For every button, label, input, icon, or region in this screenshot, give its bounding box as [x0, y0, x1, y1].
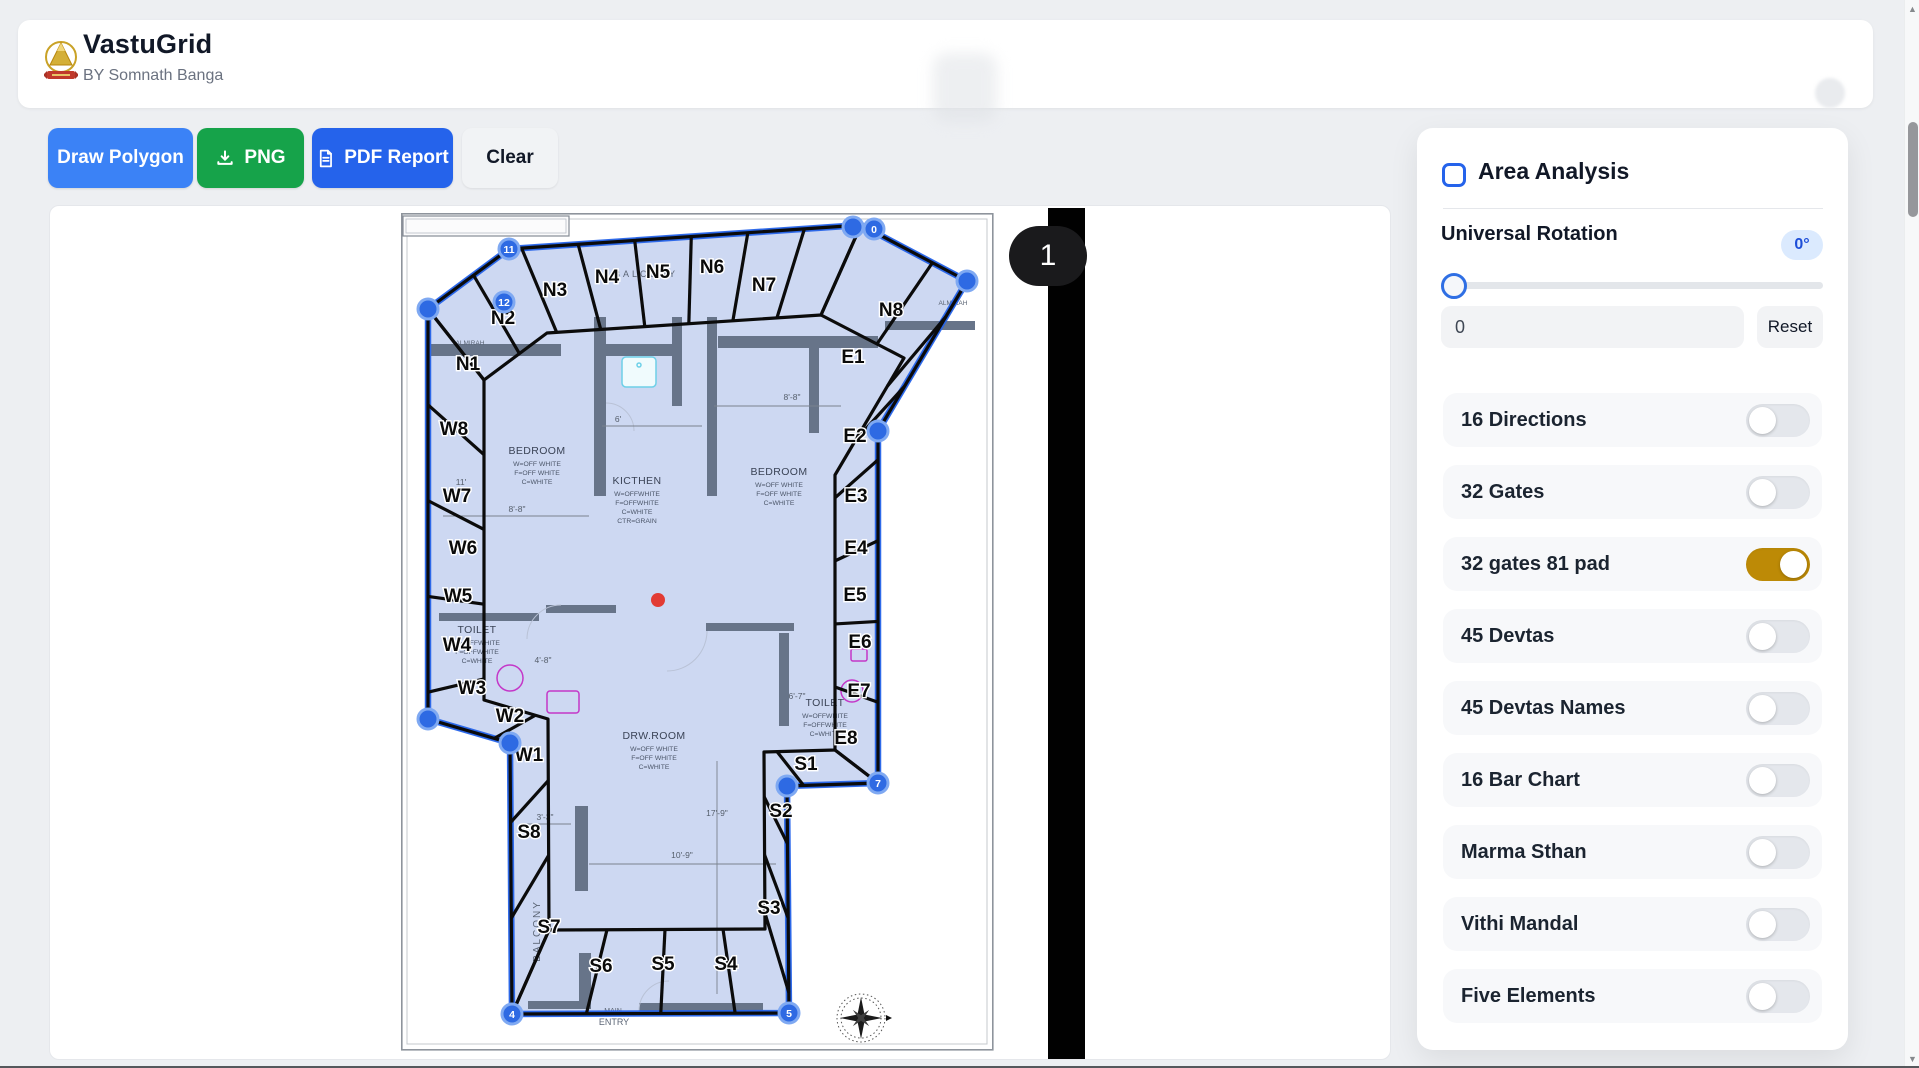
rotation-input[interactable]: [1441, 306, 1744, 348]
sector-label: S3: [757, 898, 780, 919]
vertex-handle[interactable]: [418, 299, 438, 319]
area-analysis-checkbox[interactable]: [1442, 163, 1466, 187]
vertex-handle[interactable]: [843, 217, 863, 237]
wall: [594, 317, 606, 496]
document-icon: [316, 149, 335, 168]
sector-label: S1: [794, 754, 818, 775]
sector-label: S4: [714, 954, 738, 975]
universal-rotation-label: Universal Rotation: [1441, 223, 1618, 246]
header-faded-circle: [1815, 78, 1845, 108]
vertex-handle[interactable]: [777, 776, 797, 796]
clear-button[interactable]: Clear: [462, 128, 558, 188]
sector-label: E2: [843, 426, 866, 447]
sector-label: E4: [844, 538, 868, 559]
toggle-row-five-elements: Five Elements: [1443, 969, 1822, 1023]
toggle-row-45-devtas: 45 Devtas: [1443, 609, 1822, 663]
wall: [431, 344, 561, 356]
page-number-badge[interactable]: 1: [1009, 226, 1087, 286]
header-watermark: [933, 53, 997, 123]
toggle-label-five-elements: Five Elements: [1461, 985, 1596, 1008]
toggle-label-16-bar-chart: 16 Bar Chart: [1461, 769, 1580, 792]
toggle-switch-16-bar-chart[interactable]: [1746, 764, 1810, 797]
sector-label: E5: [843, 585, 867, 606]
vertex-number: 12: [498, 297, 510, 309]
toggle-label-16-directions: 16 Directions: [1461, 409, 1587, 432]
page-divider-bar: [1048, 208, 1085, 1059]
scroll-down-arrow-icon[interactable]: ▼: [1905, 1051, 1919, 1067]
dimension-label: 4'-8": [535, 655, 552, 665]
sector-label: W3: [458, 678, 487, 699]
almirah-left-label: ALMIRAH: [456, 340, 485, 347]
sector-label: E8: [834, 728, 857, 749]
sector-label: E7: [847, 681, 870, 702]
rotation-value-badge: 0°: [1781, 230, 1823, 260]
dimension-label: 17'-9": [706, 808, 728, 818]
wall: [706, 623, 794, 631]
app-header: VastuGrid BY Somnath Banga: [18, 20, 1873, 108]
toggle-label-45-devtas-names: 45 Devtas Names: [1461, 697, 1626, 720]
vertex-number: 11: [503, 244, 514, 256]
vertex-number: 7: [875, 778, 881, 790]
toggle-switch-45-devtas-names[interactable]: [1746, 692, 1810, 725]
wall: [885, 321, 975, 330]
vertex-handle[interactable]: [868, 421, 888, 441]
page-title: VastuGrid: [83, 29, 212, 60]
wall: [575, 806, 588, 891]
wall: [779, 633, 789, 726]
sector-label: N8: [879, 300, 903, 321]
toggle-switch-five-elements[interactable]: [1746, 980, 1810, 1013]
sector-label: N1: [456, 354, 481, 375]
sector-label: E3: [844, 486, 867, 507]
vertex-handle[interactable]: [957, 271, 977, 291]
toggle-label-marma-sthan: Marma Sthan: [1461, 841, 1587, 864]
sector-label: E6: [848, 632, 871, 653]
toggle-row-16-directions: 16 Directions: [1443, 393, 1822, 447]
reset-button[interactable]: Reset: [1757, 306, 1823, 348]
page-scrollbar[interactable]: ▲ ▼: [1904, 0, 1919, 1068]
rotation-slider-thumb[interactable]: [1441, 273, 1467, 299]
sector-label: E1: [841, 347, 865, 368]
toggle-switch-32-gates[interactable]: [1746, 476, 1810, 509]
toggle-label-45-devtas: 45 Devtas: [1461, 625, 1554, 648]
wall: [546, 605, 616, 613]
sector-label: S5: [651, 954, 675, 975]
divider: [1443, 208, 1823, 209]
sector-label: S2: [769, 801, 792, 822]
sector-label: S7: [537, 917, 560, 938]
sector-label: W8: [440, 419, 469, 440]
toggle-row-32-gates: 32 Gates: [1443, 465, 1822, 519]
wall: [639, 1003, 763, 1011]
pdf-button-label: PDF Report: [344, 147, 449, 169]
wall: [672, 317, 682, 406]
draw-polygon-button[interactable]: Draw Polygon: [48, 128, 193, 188]
png-button-label: PNG: [244, 147, 285, 169]
sector-label: N4: [595, 267, 620, 288]
sector-label: W2: [496, 706, 525, 727]
toggle-row-32-gates-81-pad: 32 gates 81 pad: [1443, 537, 1822, 591]
wall: [809, 338, 819, 433]
dimension-label: 6'-7": [789, 691, 806, 701]
toggle-row-marma-sthan: Marma Sthan: [1443, 825, 1822, 879]
overlay-toggle-list: 16 Directions32 Gates32 gates 81 pad45 D…: [1443, 393, 1822, 1041]
dimension-label: 10'-9": [671, 850, 693, 860]
vertex-number: 0: [871, 224, 877, 236]
wall: [439, 613, 539, 621]
toggle-row-16-bar-chart: 16 Bar Chart: [1443, 753, 1822, 807]
dimension-label: 6': [615, 414, 622, 424]
scrollbar-thumb[interactable]: [1908, 122, 1918, 217]
toggle-switch-45-devtas[interactable]: [1746, 620, 1810, 653]
vertex-handle[interactable]: [500, 733, 520, 753]
png-button[interactable]: PNG: [197, 128, 304, 188]
toggle-row-vithi-mandal: Vithi Mandal: [1443, 897, 1822, 951]
scroll-up-arrow-icon[interactable]: ▲: [1905, 1, 1919, 17]
panel-title: Area Analysis: [1478, 158, 1629, 185]
sector-label: W5: [444, 586, 473, 607]
sector-label: N7: [752, 275, 776, 296]
dimension-label: 8'-8": [784, 392, 801, 402]
download-icon: [215, 148, 235, 168]
area-analysis-panel: Area Analysis Universal Rotation 0° Rese…: [1417, 128, 1848, 1050]
wall: [707, 317, 717, 496]
vertex-handle[interactable]: [418, 709, 438, 729]
toggle-switch-marma-sthan[interactable]: [1746, 836, 1810, 869]
vertex-number: 4: [509, 1009, 515, 1021]
page-subtitle: BY Somnath Banga: [83, 67, 223, 85]
toggle-label-vithi-mandal: Vithi Mandal: [1461, 913, 1578, 936]
pdf-report-button[interactable]: PDF Report: [312, 128, 453, 188]
sector-label: W4: [443, 635, 472, 656]
entry-label: ENTRY: [599, 1017, 629, 1027]
dimension-label: 3'-3": [537, 812, 554, 822]
sector-label: W6: [449, 538, 478, 559]
toggle-switch-32-gates-81-pad[interactable]: [1746, 548, 1810, 581]
sector-label: N5: [646, 262, 671, 283]
sector-label: W7: [443, 486, 472, 507]
rotation-slider-track[interactable]: [1441, 282, 1823, 289]
sector-label: N6: [700, 257, 724, 278]
toggle-switch-vithi-mandal[interactable]: [1746, 908, 1810, 941]
wall: [528, 1001, 586, 1009]
room-label: KICTHENW=OFFWHITEF=OFFWHITEC=WHITECTR=GR…: [613, 475, 662, 525]
center-point-marker: [651, 593, 665, 607]
vertex-number: 5: [786, 1008, 792, 1020]
wall: [606, 344, 672, 356]
toggle-label-32-gates-81-pad: 32 gates 81 pad: [1461, 553, 1610, 576]
toggle-switch-16-directions[interactable]: [1746, 404, 1810, 437]
app-logo-kalash-icon: [44, 31, 78, 95]
toggle-row-45-devtas-names: 45 Devtas Names: [1443, 681, 1822, 735]
floor-plan: BALCONY ALMIRAH ALMIRAH BALCONY MAIN ENT…: [401, 213, 994, 1051]
sector-label: S8: [517, 822, 540, 843]
toggle-label-32-gates: 32 Gates: [1461, 481, 1544, 504]
sector-label: N3: [543, 280, 567, 301]
sector-label: S6: [589, 956, 612, 977]
drawing-canvas[interactable]: BALCONY ALMIRAH ALMIRAH BALCONY MAIN ENT…: [49, 205, 1391, 1060]
dimension-label: 8'-8": [509, 504, 526, 514]
